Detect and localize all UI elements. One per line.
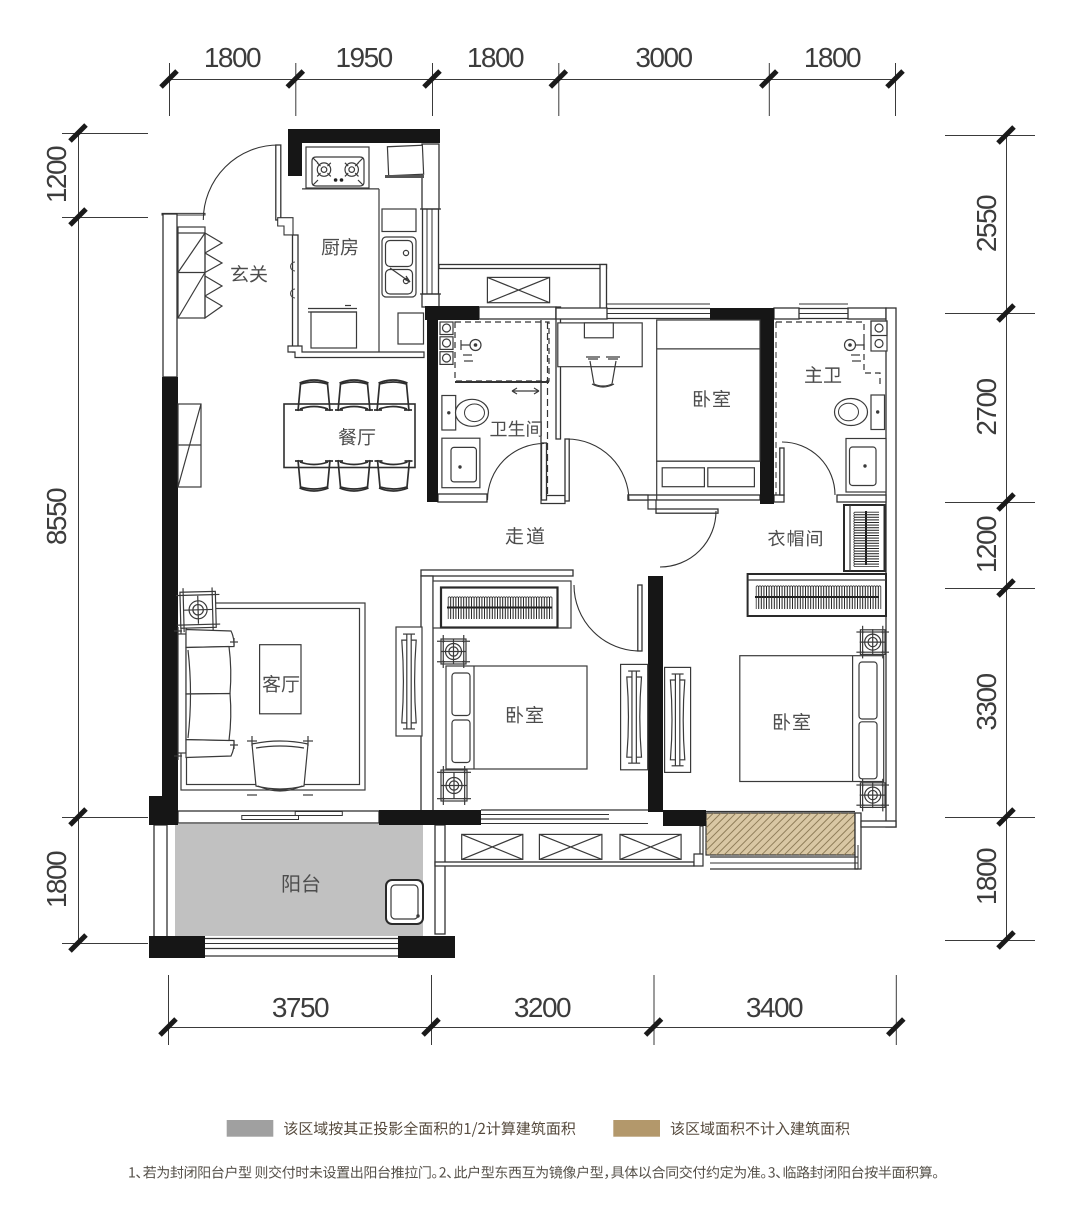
svg-text:2550: 2550 (971, 195, 1002, 252)
svg-text:3300: 3300 (971, 673, 1002, 730)
svg-text:1800: 1800 (467, 42, 524, 73)
svg-text:2700: 2700 (971, 378, 1002, 435)
svg-text:1950: 1950 (335, 42, 392, 73)
svg-text:8550: 8550 (41, 488, 72, 545)
svg-text:3750: 3750 (272, 992, 329, 1023)
svg-text:3400: 3400 (746, 992, 803, 1023)
svg-text:1200: 1200 (971, 516, 1002, 573)
svg-text:3000: 3000 (635, 42, 692, 73)
svg-text:1800: 1800 (204, 42, 261, 73)
svg-text:1800: 1800 (41, 851, 72, 908)
svg-text:1200: 1200 (41, 146, 72, 203)
svg-text:3200: 3200 (514, 992, 571, 1023)
svg-text:1800: 1800 (804, 42, 861, 73)
svg-text:1800: 1800 (971, 848, 1002, 905)
